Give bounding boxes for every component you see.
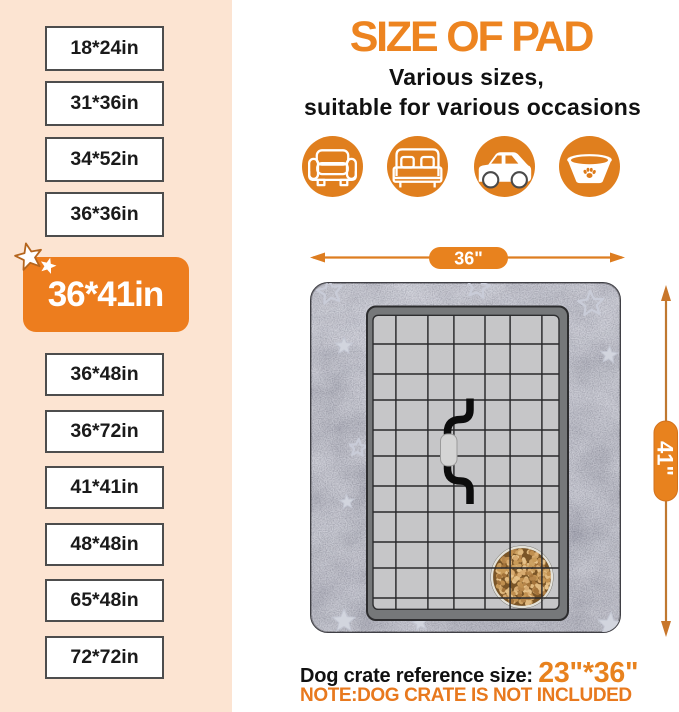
svg-text:36": 36" (454, 249, 483, 269)
svg-text:41": 41" (653, 441, 678, 476)
